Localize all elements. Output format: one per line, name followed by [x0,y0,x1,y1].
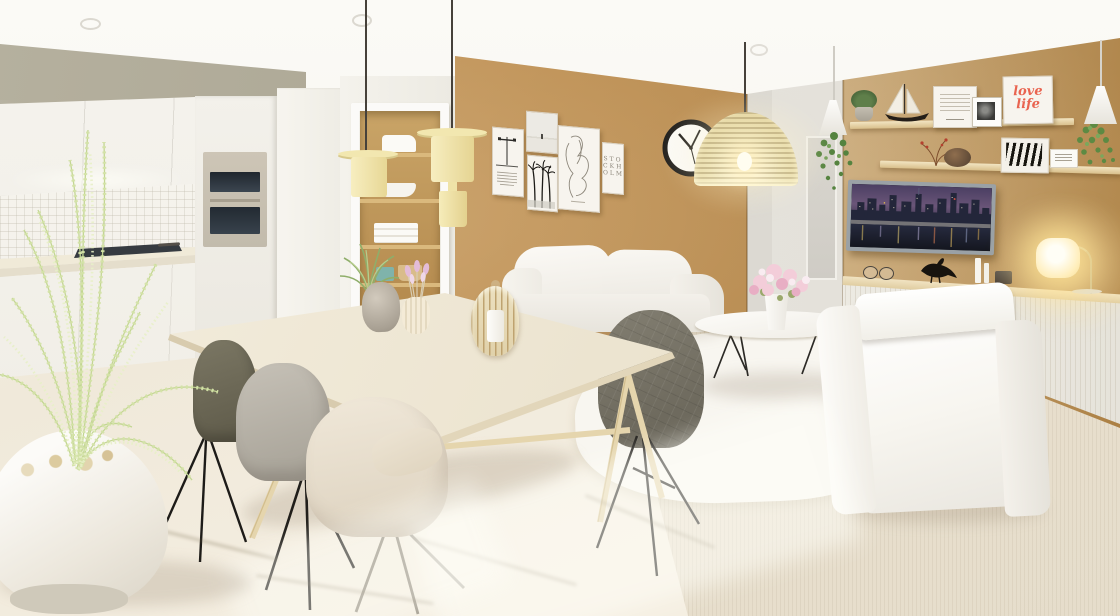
candle-stick [975,258,981,283]
pendant-lamp-right-shade [431,136,474,182]
eyeglasses [879,267,894,280]
love-life-poster: love life [1003,76,1054,125]
gallery-frame-sketch [558,125,600,213]
flower-bouquet [740,258,822,308]
zebra-photo-frame [1001,138,1050,174]
armchair-arm-right [995,319,1051,517]
quote-poster [933,86,977,128]
pendant-cord [365,0,367,152]
table-lamp-shade [1036,238,1080,278]
small-photo [977,102,995,120]
pendant-cord [451,0,453,130]
round-vase [944,148,971,167]
pendant-cord [1100,40,1102,86]
lantern-candle [487,310,504,342]
love-life-text: life [1004,98,1052,112]
table-lamp-base [1072,289,1102,294]
tv-skyline-image [850,184,992,251]
gallery-frame-lamppost [492,127,524,198]
gallery-frame-stockholm: STO CKH OLM [602,142,624,195]
candle-stick [984,263,989,283]
zebra-photo [1006,143,1042,167]
shelf-ivy-plant [1068,116,1120,172]
rattan-pendant-bulb [737,152,752,171]
gallery-frame-beach [526,111,558,155]
quote-text-lines [940,94,970,114]
eyeglasses [863,266,878,279]
lamppost-print [493,128,521,194]
sailboat-model [884,82,930,124]
pendant-lamp-left-shade [351,157,387,197]
ceiling-spotlight [750,44,768,56]
quote-caption-line [946,119,964,120]
stockholm-text: OLM [603,169,623,178]
bird-figurine [916,254,958,284]
candle-lantern [471,286,519,356]
sketch-print [559,126,597,209]
gallery-frame-palms [527,155,558,213]
armchair [822,284,1048,524]
pendant-cord [833,46,835,102]
pendant-lamp-right-lower-shade [439,191,467,227]
ceiling-spotlight [352,14,372,27]
ceiling-spotlight [80,18,101,30]
beach-figure [541,134,543,139]
tv [846,180,996,256]
ribbed-vase [402,297,430,334]
palm-trees-print [528,156,555,209]
small-photo-frame [972,97,1002,127]
shelf-plant-pot [855,107,873,121]
living-room-render: STO CKH OLM love life [0,0,1120,616]
plant-pot-foot [10,584,128,614]
indoor-plant [0,112,240,552]
